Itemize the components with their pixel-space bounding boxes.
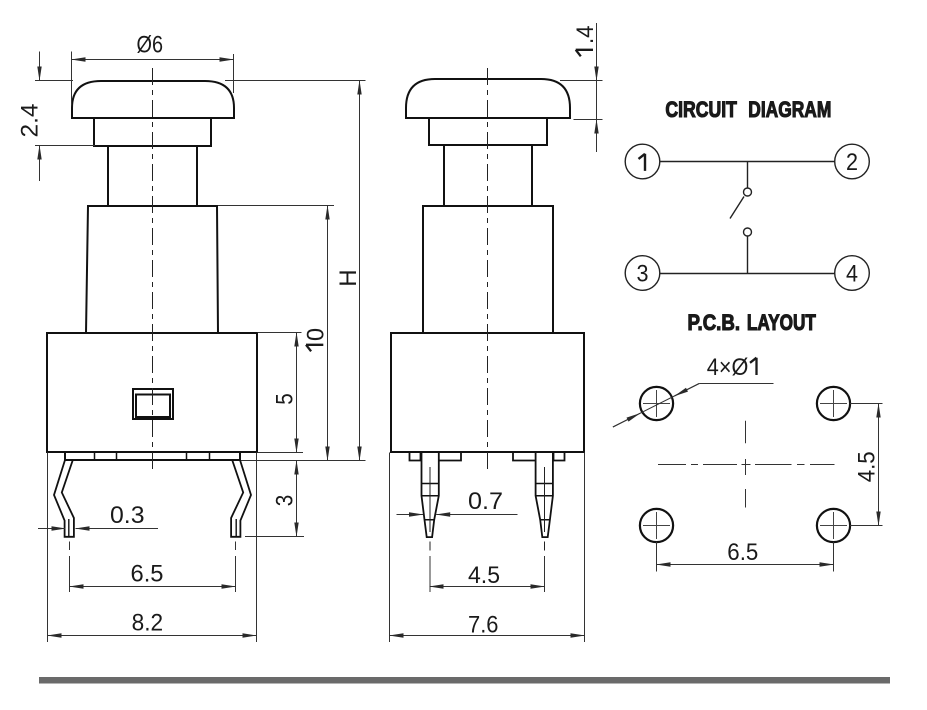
svg-text:7.6: 7.6 bbox=[468, 612, 499, 639]
svg-text:0.7: 0.7 bbox=[468, 488, 503, 515]
svg-text:6.5: 6.5 bbox=[131, 560, 164, 587]
svg-text:DIAGRAM: DIAGRAM bbox=[748, 97, 831, 122]
svg-text:Ø6: Ø6 bbox=[137, 31, 164, 58]
svg-text:P.C.B.: P.C.B. bbox=[688, 310, 741, 335]
svg-text:3: 3 bbox=[272, 495, 299, 507]
svg-text:H: H bbox=[335, 269, 362, 286]
svg-text:6.5: 6.5 bbox=[727, 539, 758, 566]
svg-text:4: 4 bbox=[846, 261, 858, 288]
svg-text:CIRCUIT: CIRCUIT bbox=[665, 97, 737, 122]
svg-text:4.5: 4.5 bbox=[854, 451, 881, 482]
svg-text:2.4: 2.4 bbox=[17, 104, 44, 138]
svg-text:3: 3 bbox=[637, 261, 649, 288]
svg-text:4×Ø: 4×Ø bbox=[707, 354, 749, 381]
svg-text:8.2: 8.2 bbox=[132, 610, 164, 637]
svg-text:0.3: 0.3 bbox=[110, 502, 145, 529]
svg-text:0: 0 bbox=[302, 328, 329, 341]
svg-text:.4: .4 bbox=[572, 26, 599, 45]
svg-text:4.5: 4.5 bbox=[468, 562, 500, 589]
svg-text:LAYOUT: LAYOUT bbox=[747, 310, 816, 335]
svg-text:2: 2 bbox=[846, 149, 858, 176]
svg-text:5: 5 bbox=[272, 393, 299, 405]
